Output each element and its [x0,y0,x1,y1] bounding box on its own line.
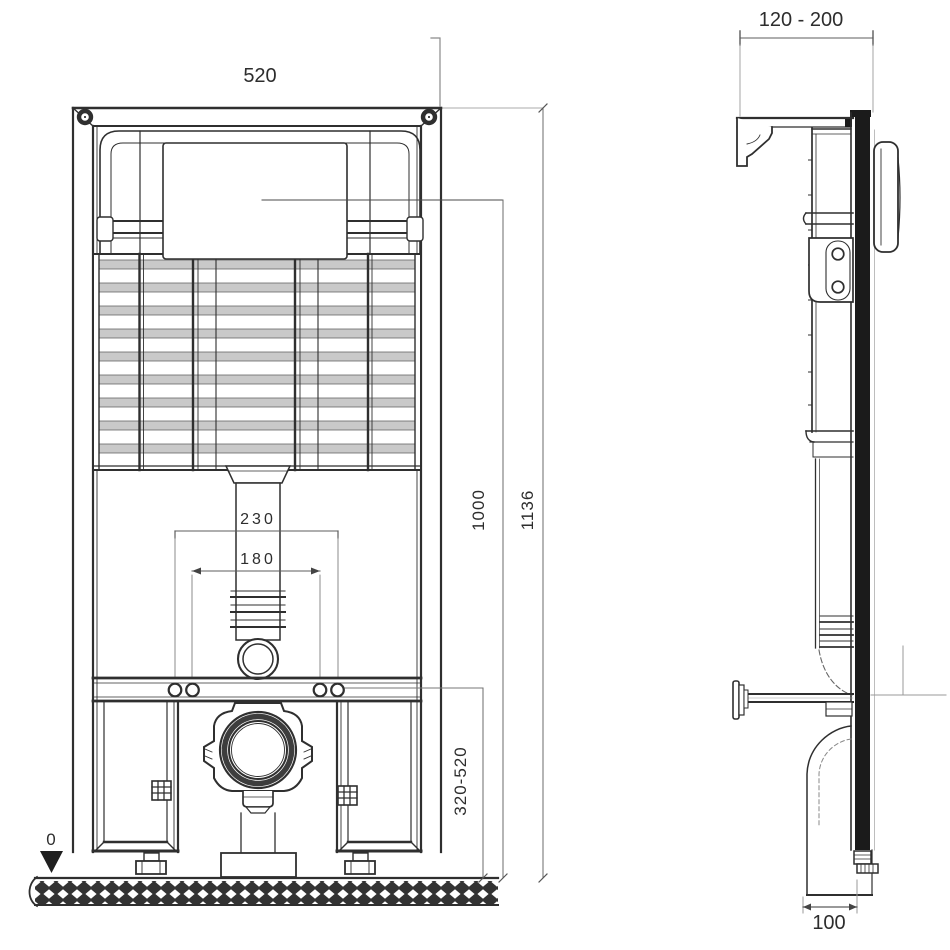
dim-base-depth-label: 100 [812,912,845,934]
frame-rail-side [850,110,875,850]
dim-total-height-label: 1136 [518,490,537,531]
corner-screw-left [79,111,91,123]
wall-bracket [737,118,853,166]
dim-flush-height-label: 1000 [469,489,488,531]
drain-base [221,813,296,877]
flush-pipe-side [816,459,854,695]
leveling-foot [854,851,878,873]
side-view [733,31,946,913]
pipe-outlet-fitting [238,639,278,679]
floor-hatch [30,877,499,906]
frame-leg-right [337,701,421,852]
dim-spacing-outer-label: 230 [240,511,276,528]
width-witness-line [431,38,440,106]
pan-fixing-rod [733,646,946,719]
insulation-grid [93,254,421,470]
dim-depth-range [740,31,873,116]
technical-drawing-page: 0 [0,0,950,950]
dim-depth-range-label: 120 - 200 [759,9,844,31]
fixing-plate-side [809,238,853,302]
fixing-hole [186,684,199,697]
mounting-crossbar [93,678,421,701]
dim-outlet-range-label: 320-520 [451,746,470,815]
foot-plate-right [338,786,357,805]
foot-left [136,853,166,874]
cistern-frame-drawing: 0 [0,0,950,950]
fixing-hole [331,684,344,697]
foot-plate-left [152,781,171,800]
dim-base-depth [803,880,857,913]
fixing-hole [314,684,327,697]
frame-leg-left [93,701,178,852]
flush-plate-side [874,142,900,252]
fixing-hole [169,684,182,697]
floor-level-label: 0 [46,830,55,849]
corner-screw-right [423,111,435,123]
floor-level-marker: 0 [40,830,63,873]
drain-connector [204,703,312,813]
inspection-window [163,143,347,259]
foot-right [345,853,375,874]
dim-width-label: 520 [243,65,276,87]
dim-spacing-inner-label: 180 [240,551,276,568]
